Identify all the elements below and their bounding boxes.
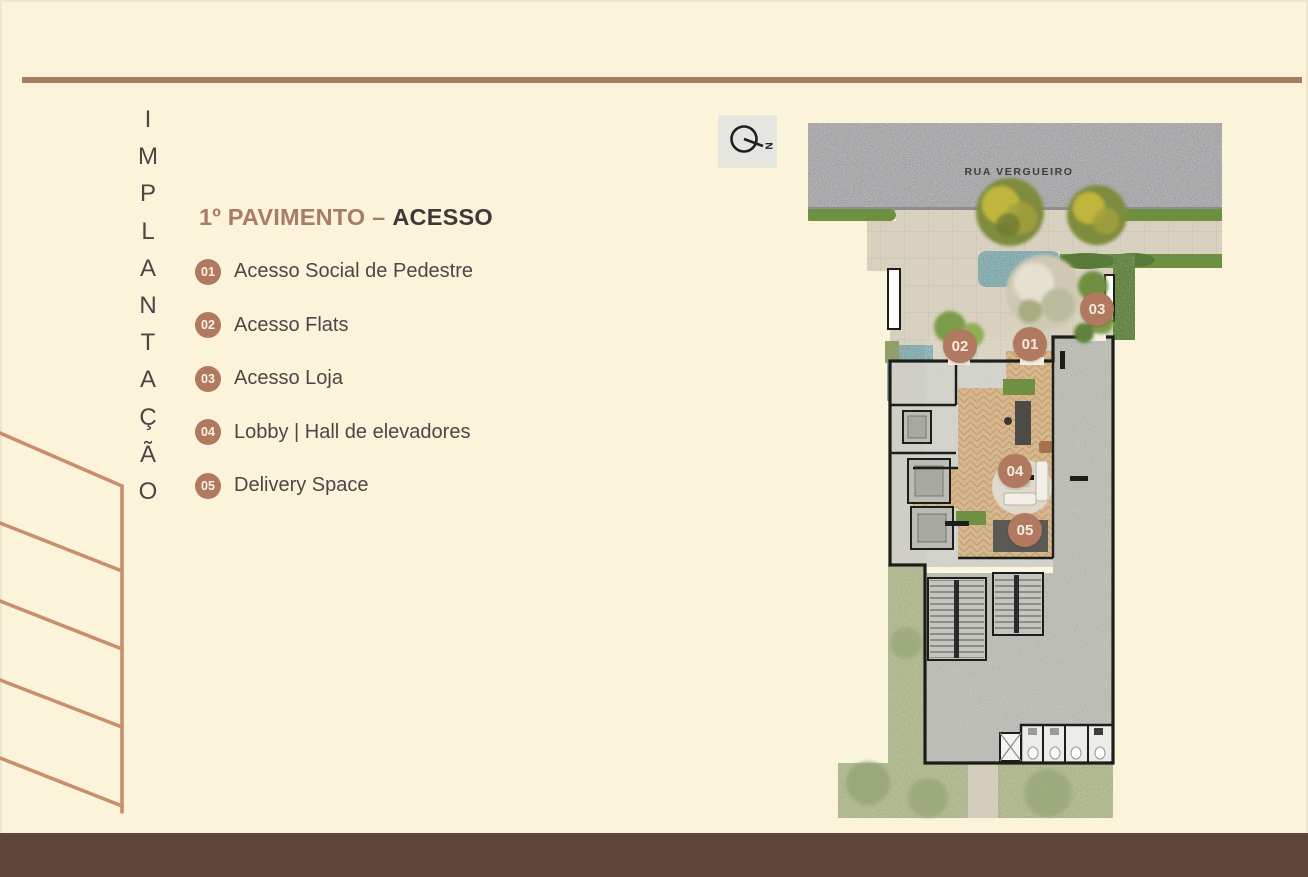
top-divider-line (22, 77, 1302, 83)
north-arrow-icon: N (718, 115, 777, 168)
delivery-space-counter (993, 520, 1048, 552)
footer-bar (0, 833, 1308, 877)
stairs (993, 573, 1043, 635)
legend-badge-03: 03 (195, 366, 221, 392)
implantation-slide: IMPLANTAÇÃO 1º PAVIMENTO –ACESSO 01 Aces… (0, 0, 1308, 877)
vertical-section-title: IMPLANTAÇÃO (132, 106, 164, 506)
flowering-tree-icon (1006, 255, 1082, 331)
legend-item-01: 01 Acesso Social de Pedestre (195, 258, 473, 285)
legend-badge-05: 05 (195, 473, 221, 499)
shaft-room (1000, 733, 1021, 761)
page-title: 1º PAVIMENTO –ACESSO (199, 204, 493, 231)
legend-list: 01 Acesso Social de Pedestre 02 Acesso F… (195, 258, 473, 526)
elevator (911, 507, 953, 549)
svg-text:N: N (762, 142, 773, 149)
elevator (908, 459, 950, 503)
tree-icon (976, 178, 1044, 246)
legend-item-04: 04 Lobby | Hall de elevadores (195, 419, 473, 446)
legend-badge-02: 02 (195, 312, 221, 338)
reception-desk (1015, 401, 1031, 445)
site-plan: RUA VERGUEIRO (808, 123, 1222, 820)
legend-badge-01: 01 (195, 259, 221, 285)
legend-item-02: 02 Acesso Flats (195, 312, 473, 339)
legend-item-05: 05 Delivery Space (195, 472, 473, 499)
page-title-emphasis: ACESSO (392, 204, 492, 230)
tree-icon (1067, 185, 1127, 245)
legend-item-03: 03 Acesso Loja (195, 365, 473, 392)
street-label: RUA VERGUEIRO (964, 166, 1073, 178)
page-title-prefix: 1º PAVIMENTO – (199, 204, 385, 230)
stairs (928, 578, 986, 660)
diagonal-lines-decoration (0, 0, 140, 877)
elevator (903, 411, 931, 443)
legend-badge-04: 04 (195, 419, 221, 445)
